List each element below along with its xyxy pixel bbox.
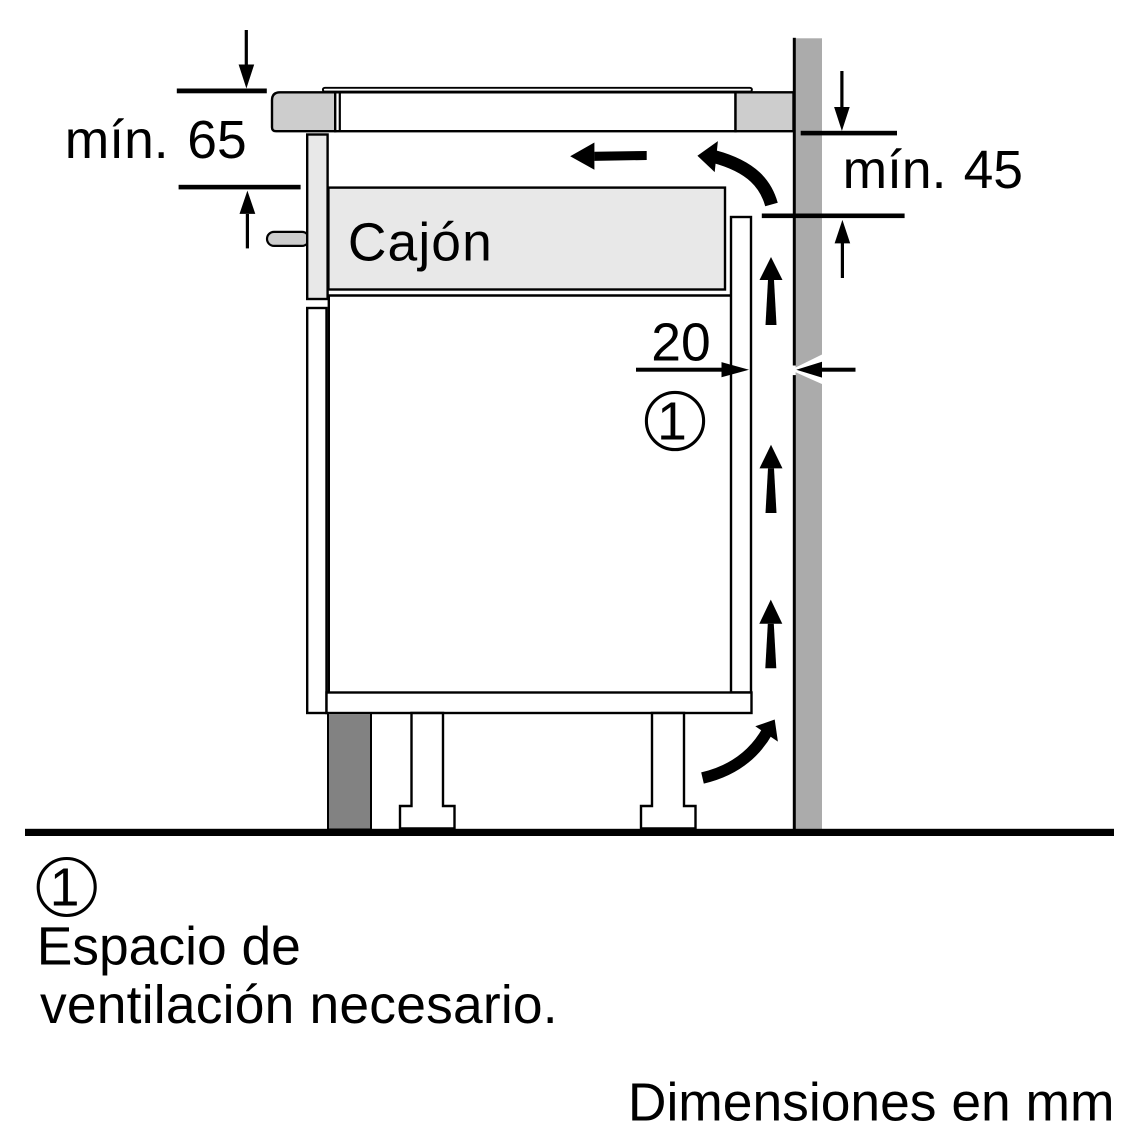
- svg-text:ventilación necesario.: ventilación necesario.: [40, 976, 558, 1035]
- svg-text:mín.: mín.: [843, 141, 947, 200]
- svg-text:65: 65: [187, 111, 246, 170]
- svg-text:1: 1: [657, 393, 687, 452]
- svg-text:Espacio de: Espacio de: [37, 918, 301, 977]
- svg-text:mín.: mín.: [65, 111, 169, 170]
- svg-text:Dimensiones en mm: Dimensiones en mm: [628, 1074, 1115, 1133]
- svg-text:20: 20: [651, 314, 710, 373]
- svg-text:Cajón: Cajón: [348, 213, 493, 272]
- svg-text:45: 45: [964, 141, 1023, 200]
- svg-text:1: 1: [50, 859, 80, 918]
